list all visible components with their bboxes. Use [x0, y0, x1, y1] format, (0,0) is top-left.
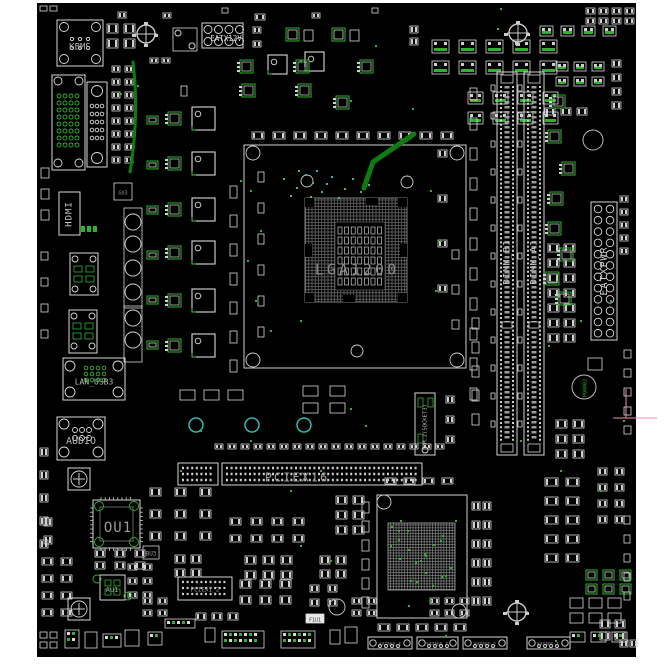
- smd-component: [563, 79, 566, 82]
- smd-component: [358, 133, 360, 138]
- smd-component: [280, 536, 282, 541]
- smd-component: [151, 59, 153, 62]
- smd-component: [165, 252, 168, 254]
- smd-component: [241, 581, 243, 587]
- test-point: [298, 170, 300, 172]
- smd-component: [87, 226, 91, 232]
- smd-component: [345, 133, 347, 138]
- smd-component: [605, 9, 607, 13]
- smd-component: [72, 632, 75, 635]
- smd-component: [113, 67, 115, 71]
- smd-component: [398, 198, 407, 207]
- smd-component: [549, 305, 551, 311]
- smd-component: [581, 421, 583, 427]
- smd-component: [165, 296, 168, 298]
- smd-component: [246, 557, 248, 563]
- smd-component: [301, 519, 303, 524]
- dimm-key: [502, 322, 512, 328]
- ball-grid-dot: [415, 562, 417, 564]
- smd-component: [295, 94, 298, 96]
- smd-component: [115, 40, 117, 47]
- smd-component: [565, 320, 567, 326]
- smd-component: [144, 599, 146, 603]
- smd-component: [231, 519, 233, 524]
- smd-component: [439, 286, 441, 291]
- smd-component: [241, 597, 243, 603]
- smd-component: [176, 511, 178, 517]
- smd-component: [525, 42, 528, 45]
- smd-component: [618, 9, 620, 13]
- via-dot: [137, 85, 139, 87]
- smd-component: [67, 632, 70, 635]
- smd-component: [50, 576, 52, 581]
- smd-component: [581, 64, 584, 67]
- smd-component: [488, 541, 490, 547]
- smd-component: [559, 164, 562, 166]
- ball-grid-dot: [416, 581, 418, 583]
- smd-component: [41, 541, 43, 547]
- smd-component: [151, 511, 153, 517]
- smd-component: [187, 621, 190, 624]
- smd-component: [565, 275, 567, 281]
- via-dot: [610, 300, 612, 302]
- smd-component: [298, 445, 300, 448]
- board-canvas[interactable]: KBMSEATX12VHDMILAN_USB3AUDIOLGA1200DIMM_…: [0, 0, 669, 669]
- smd-component: [387, 133, 389, 138]
- smd-component: [515, 600, 519, 603]
- smd-component: [320, 445, 322, 448]
- smd-component: [235, 614, 237, 619]
- smd-component: [311, 600, 313, 605]
- smd-component: [616, 501, 618, 506]
- smd-component: [165, 114, 168, 116]
- smd-component: [289, 557, 291, 563]
- via-dot: [250, 190, 252, 192]
- smd-component: [621, 210, 623, 214]
- smd-component: [201, 533, 203, 539]
- smd-component: [242, 445, 244, 448]
- smd-component: [303, 639, 306, 642]
- smd-component: [117, 80, 119, 84]
- smd-component: [385, 445, 387, 448]
- smd-component: [168, 14, 170, 17]
- smd-component: [43, 576, 45, 581]
- smd-component: [254, 633, 257, 636]
- smd-component: [353, 599, 355, 603]
- smd-component: [117, 106, 119, 110]
- smd-component: [96, 563, 98, 568]
- smd-component: [144, 22, 148, 25]
- smd-component: [447, 437, 449, 442]
- test-point: [305, 174, 307, 176]
- smd-component: [549, 320, 551, 326]
- smd-component: [357, 70, 360, 72]
- smd-component: [41, 472, 43, 478]
- audio-label: AUDIO: [66, 436, 96, 447]
- smd-component: [555, 517, 557, 523]
- smd-component: [441, 445, 443, 448]
- smd-component: [498, 42, 501, 45]
- smd-component: [581, 451, 583, 457]
- smd-component: [387, 625, 389, 630]
- ball-grid-dot: [450, 567, 452, 569]
- smd-component: [478, 94, 481, 97]
- smd-component: [273, 519, 275, 524]
- smd-component: [149, 593, 151, 597]
- smd-component: [613, 89, 615, 94]
- smd-component: [126, 80, 128, 84]
- smd-component: [520, 114, 523, 117]
- eatxpwr-label: EATXPWR: [599, 246, 610, 295]
- smd-component: [72, 638, 75, 641]
- smd-component: [616, 621, 618, 627]
- smd-component: [599, 64, 602, 67]
- via-dot: [398, 530, 400, 532]
- test-point: [310, 196, 312, 198]
- smd-component: [442, 133, 444, 138]
- smd-component: [165, 209, 168, 211]
- smd-component: [113, 132, 115, 136]
- smd-component: [444, 151, 446, 156]
- smd-component: [549, 101, 552, 103]
- smd-component: [546, 109, 548, 114]
- smd-component: [557, 436, 559, 442]
- test-point: [321, 191, 323, 193]
- test-point: [344, 188, 346, 190]
- smd-component: [626, 9, 628, 13]
- smd-component: [434, 69, 447, 72]
- smd-component: [556, 260, 558, 266]
- smd-component: [546, 498, 548, 504]
- smd-component: [132, 40, 134, 47]
- smd-component: [237, 70, 240, 72]
- smd-component: [93, 226, 97, 232]
- ball-grid-dot: [399, 558, 401, 560]
- smd-component: [581, 436, 583, 442]
- smd-component: [417, 625, 419, 630]
- ball-grid-dot: [407, 530, 409, 532]
- ball-grid-dot: [408, 549, 410, 551]
- smd-component: [613, 75, 615, 80]
- smd-component: [584, 28, 587, 31]
- smd-component: [552, 109, 554, 114]
- smd-component: [473, 503, 475, 509]
- smd-component: [67, 638, 70, 641]
- smd-component: [155, 59, 157, 62]
- smd-component: [126, 158, 128, 162]
- smd-component: [119, 13, 121, 17]
- smd-component: [281, 445, 283, 448]
- smd-component: [50, 593, 52, 598]
- smd-component: [327, 557, 329, 563]
- smd-component: [525, 63, 528, 66]
- smd-component: [613, 61, 615, 66]
- smd-component: [272, 445, 274, 448]
- smd-component: [176, 556, 178, 562]
- ball-grid-dot: [398, 539, 400, 541]
- smd-component: [557, 258, 560, 260]
- smd-component: [607, 633, 609, 639]
- smd-component: [461, 42, 464, 45]
- smd-component: [547, 202, 550, 204]
- smd-component: [451, 437, 453, 442]
- smd-component: [592, 9, 594, 13]
- via-dot: [390, 545, 392, 547]
- smd-component: [470, 99, 481, 102]
- smd-component: [289, 572, 291, 578]
- smd-component: [450, 133, 452, 138]
- smd-component: [558, 64, 561, 67]
- smd-component: [621, 501, 623, 506]
- smd-component: [363, 445, 365, 448]
- smd-component: [613, 9, 615, 13]
- smd-component: [41, 449, 43, 455]
- smd-component: [557, 250, 560, 252]
- smd-component: [163, 59, 165, 62]
- smd-component: [400, 133, 402, 138]
- smd-component: [616, 469, 618, 474]
- smd-component: [129, 579, 131, 583]
- dimm-latch: [501, 444, 513, 452]
- smd-component: [424, 445, 426, 448]
- smd-component: [379, 625, 381, 630]
- smd-component: [455, 625, 457, 630]
- smd-component: [254, 28, 256, 32]
- test-point: [296, 187, 298, 189]
- test-point: [470, 117, 472, 119]
- smd-component: [238, 536, 240, 541]
- smd-component: [461, 48, 474, 51]
- smd-component: [293, 66, 296, 68]
- via-dot: [580, 320, 582, 322]
- smd-component: [601, 621, 603, 627]
- smd-component: [503, 612, 507, 615]
- smd-component: [337, 571, 339, 577]
- test-point: [290, 195, 292, 197]
- via-dot: [350, 100, 352, 102]
- smd-component: [45, 495, 47, 501]
- smd-component: [254, 42, 256, 46]
- smd-component: [594, 64, 597, 67]
- smd-component: [229, 614, 231, 619]
- smd-component: [49, 519, 51, 525]
- smd-component: [626, 19, 628, 23]
- smd-component: [436, 625, 438, 630]
- sata6g2-label: SATA6G_2: [474, 642, 496, 648]
- smd-component: [264, 572, 266, 578]
- smd-component: [358, 599, 360, 603]
- smd-component: [549, 260, 551, 266]
- smd-component: [238, 519, 240, 524]
- dimm-latch: [528, 75, 540, 83]
- smd-component: [165, 205, 168, 207]
- smd-component: [572, 305, 574, 311]
- smd-component: [584, 31, 593, 34]
- smd-component: [616, 485, 618, 490]
- smd-component: [69, 559, 71, 564]
- via-dot: [623, 420, 625, 422]
- smd-component: [556, 335, 558, 341]
- smd-component: [631, 19, 633, 23]
- smd-component: [307, 445, 309, 448]
- via-dot: [600, 490, 602, 492]
- smd-component: [116, 551, 118, 556]
- smd-component: [252, 519, 254, 524]
- dimm-latch: [528, 444, 540, 452]
- smd-component: [102, 563, 104, 568]
- smd-component: [285, 445, 287, 448]
- smd-component: [337, 512, 339, 518]
- f1u1-label: F1U1: [309, 618, 321, 624]
- via-dot: [260, 230, 262, 232]
- smd-component: [281, 581, 283, 587]
- smd-component: [488, 579, 490, 585]
- smd-component: [428, 445, 430, 448]
- smd-component: [253, 572, 255, 578]
- smd-component: [115, 636, 118, 639]
- smd-component: [229, 639, 232, 642]
- smd-component: [165, 163, 168, 165]
- smd-component: [353, 611, 355, 615]
- smd-component: [379, 133, 381, 138]
- smd-component: [546, 555, 548, 561]
- smd-component: [316, 133, 318, 138]
- smd-component: [113, 80, 115, 84]
- smd-component: [159, 611, 161, 615]
- smd-component: [411, 445, 413, 448]
- smd-component: [439, 151, 441, 156]
- smd-component: [316, 586, 318, 591]
- smd-component: [219, 614, 221, 619]
- smd-component: [293, 633, 296, 636]
- smd-component: [108, 40, 110, 47]
- smd-component: [149, 565, 151, 569]
- smd-component: [398, 293, 407, 302]
- smd-component: [165, 213, 168, 215]
- smd-component: [233, 445, 235, 448]
- via-dot: [425, 555, 427, 557]
- smd-component: [96, 551, 98, 556]
- smd-component: [625, 210, 627, 214]
- smd-component: [625, 223, 627, 227]
- smd-component: [244, 639, 247, 642]
- smd-component: [203, 614, 205, 619]
- smd-component: [130, 119, 132, 123]
- smd-component: [488, 48, 501, 51]
- smd-component: [246, 572, 248, 578]
- smd-component: [488, 503, 490, 509]
- smd-component: [431, 479, 433, 483]
- smd-component: [126, 145, 128, 149]
- smd-component: [264, 557, 266, 563]
- smd-component: [549, 335, 551, 341]
- smd-component: [625, 641, 627, 646]
- smd-component: [271, 572, 273, 578]
- via-dot: [430, 190, 432, 192]
- smd-component: [158, 489, 160, 495]
- smd-component: [258, 42, 260, 46]
- smd-component: [149, 599, 151, 603]
- smd-component: [549, 245, 551, 251]
- smd-component: [563, 31, 572, 34]
- smd-component: [619, 634, 622, 637]
- smd-component: [246, 445, 248, 448]
- via-dot: [520, 440, 522, 442]
- smd-component: [412, 479, 414, 483]
- smd-component: [308, 633, 311, 636]
- smd-component: [618, 103, 620, 108]
- smd-component: [587, 9, 589, 13]
- smd-component: [224, 639, 227, 642]
- smd-component: [477, 541, 479, 547]
- smd-component: [165, 345, 168, 347]
- smd-component: [126, 106, 128, 110]
- smd-component: [144, 593, 146, 597]
- test-point: [326, 183, 328, 185]
- smd-component: [321, 571, 323, 577]
- via-dot: [200, 430, 202, 432]
- smd-component: [613, 19, 615, 23]
- smd-component: [621, 236, 623, 240]
- smd-component: [614, 634, 617, 637]
- smd-component: [165, 256, 168, 258]
- smd-component: [282, 557, 284, 563]
- smd-component: [132, 34, 136, 37]
- smd-component: [329, 586, 331, 591]
- smd-component: [354, 527, 356, 533]
- smd-component: [515, 48, 528, 51]
- smd-component: [197, 614, 199, 619]
- smd-component: [545, 114, 548, 117]
- test-point: [312, 182, 314, 184]
- smd-component: [113, 145, 115, 149]
- smd-component: [515, 622, 519, 625]
- smd-component: [621, 641, 623, 646]
- smd-component: [274, 133, 276, 138]
- ball-grid-dot: [442, 535, 444, 537]
- smd-component: [237, 62, 240, 64]
- smd-component: [559, 168, 562, 170]
- smd-component: [621, 197, 623, 201]
- smd-component: [288, 633, 291, 636]
- smd-component: [598, 634, 601, 637]
- smd-component: [525, 612, 529, 615]
- via-dot: [560, 470, 562, 472]
- au1-label: AU1: [106, 586, 119, 594]
- smd-component: [520, 99, 531, 102]
- smd-component: [41, 495, 43, 501]
- smd-component: [268, 581, 270, 587]
- smd-component: [154, 34, 158, 37]
- smd-component: [69, 576, 71, 581]
- smd-component: [282, 572, 284, 578]
- smd-component: [548, 28, 551, 31]
- smd-component: [564, 436, 566, 442]
- smd-component: [259, 536, 261, 541]
- smd-component: [599, 79, 602, 82]
- dimm-a1-label: DIMM_A1: [530, 240, 540, 285]
- smd-component: [444, 625, 446, 630]
- smd-component: [542, 63, 545, 66]
- smd-component: [303, 633, 306, 636]
- smd-component: [572, 320, 574, 326]
- smd-component: [451, 417, 453, 422]
- smd-component: [473, 522, 475, 528]
- smd-component: [473, 579, 475, 585]
- smd-component: [605, 19, 607, 23]
- smd-component: [599, 469, 601, 474]
- smd-component: [167, 621, 170, 624]
